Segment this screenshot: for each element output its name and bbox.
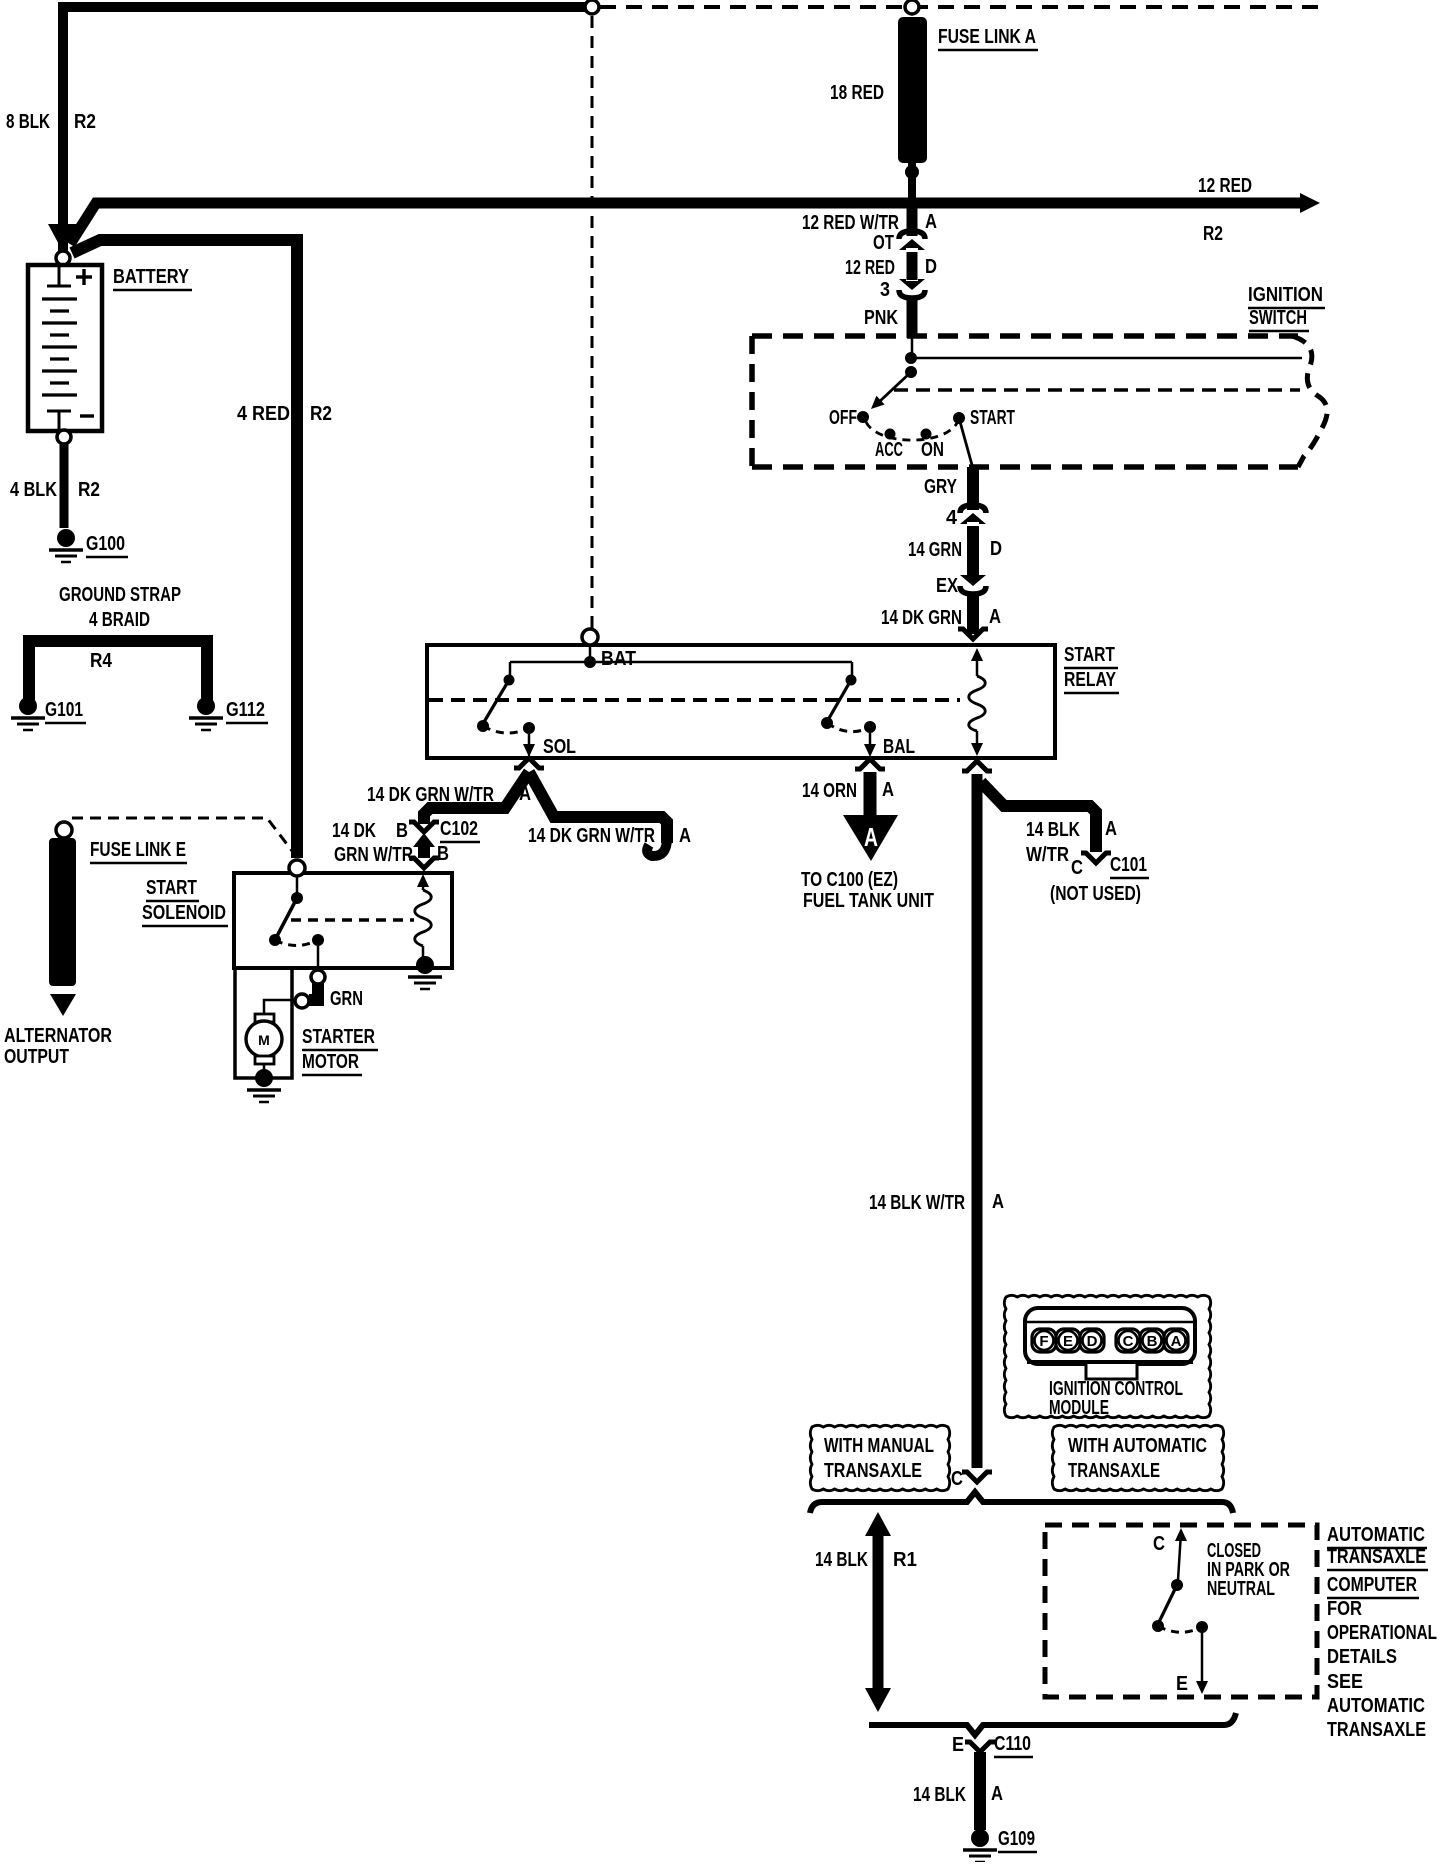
svg-text:R2: R2 [78,479,100,501]
svg-text:START: START [1064,644,1115,666]
svg-text:3: 3 [880,279,890,301]
svg-text:IGNITION: IGNITION [1248,284,1323,306]
svg-text:BAT: BAT [601,648,636,670]
svg-text:SOL: SOL [543,736,576,758]
svg-text:F: F [1039,1333,1048,1350]
svg-text:14 GRN: 14 GRN [908,539,962,561]
svg-text:ON: ON [921,439,944,461]
svg-text:BAL: BAL [883,736,915,758]
svg-text:M: M [258,1032,270,1048]
svg-text:FOR: FOR [1327,1598,1362,1620]
svg-text:12 RED: 12 RED [1198,175,1252,197]
svg-text:R1: R1 [893,1549,917,1571]
svg-text:GRN W/TR: GRN W/TR [334,844,413,866]
svg-text:B: B [396,820,408,842]
svg-text:SWITCH: SWITCH [1249,307,1307,329]
svg-text:TRANSAXLE: TRANSAXLE [824,1460,922,1482]
svg-text:G109: G109 [998,1828,1035,1850]
svg-text:STARTER: STARTER [302,1026,375,1048]
svg-text:A: A [992,1191,1004,1213]
svg-text:TRANSAXLE: TRANSAXLE [1327,1546,1426,1568]
svg-text:A: A [991,1783,1003,1805]
svg-text:SOLENOID: SOLENOID [142,902,226,924]
svg-text:C: C [1071,857,1083,879]
svg-text:R4: R4 [90,650,113,672]
svg-text:C101: C101 [1110,854,1147,876]
svg-text:ACC: ACC [875,439,903,461]
svg-text:A: A [679,825,691,847]
svg-text:G101: G101 [45,699,83,721]
svg-text:ALTERNATOR: ALTERNATOR [4,1025,112,1047]
svg-text:C110: C110 [994,1733,1031,1755]
svg-text:MODULE: MODULE [1049,1397,1109,1419]
svg-text:A: A [989,606,1001,628]
svg-text:WITH AUTOMATIC: WITH AUTOMATIC [1068,1435,1207,1457]
svg-text:14 BLK: 14 BLK [1026,819,1080,841]
svg-text:14 BLK: 14 BLK [913,1784,966,1806]
svg-text:GRY: GRY [924,476,958,498]
svg-text:E: E [1063,1333,1073,1350]
svg-text:R2: R2 [74,111,96,133]
svg-text:W/TR: W/TR [1026,844,1069,866]
svg-text:A: A [864,822,878,852]
svg-text:GROUND STRAP: GROUND STRAP [59,584,181,606]
svg-text:GRN: GRN [330,988,363,1010]
svg-text:G112: G112 [226,699,265,721]
svg-text:A: A [925,211,937,233]
svg-text:EX: EX [936,575,959,597]
svg-text:AUTOMATIC: AUTOMATIC [1327,1695,1425,1717]
svg-text:OUTPUT: OUTPUT [4,1046,69,1068]
svg-text:COMPUTER: COMPUTER [1327,1574,1417,1596]
svg-text:C: C [951,1468,963,1490]
svg-text:SEE: SEE [1327,1671,1363,1693]
svg-text:C: C [1123,1333,1134,1350]
svg-text:14 BLK: 14 BLK [815,1549,868,1571]
svg-text:14 DK: 14 DK [332,820,376,842]
svg-text:18 RED: 18 RED [830,82,884,104]
svg-text:C102: C102 [440,818,478,840]
svg-text:OFF: OFF [829,407,857,429]
svg-text:PNK: PNK [864,307,898,329]
svg-text:12 RED: 12 RED [845,257,895,279]
svg-text:4 BRAID: 4 BRAID [89,609,150,631]
svg-text:14 DK GRN W/TR: 14 DK GRN W/TR [367,784,494,806]
svg-text:D: D [1087,1333,1098,1350]
svg-text:A: A [882,779,894,801]
svg-text:E: E [952,1734,964,1756]
svg-text:4 RED: 4 RED [237,403,290,425]
svg-text:R2: R2 [310,403,332,425]
svg-text:A: A [1105,818,1117,840]
svg-text:D: D [925,256,937,278]
svg-text:FUSE LINK E: FUSE LINK E [90,839,186,861]
svg-text:A: A [519,783,531,805]
svg-text:NEUTRAL: NEUTRAL [1207,1578,1275,1600]
svg-text:TO C100 (EZ): TO C100 (EZ) [801,869,898,891]
svg-text:BATTERY: BATTERY [113,266,190,288]
svg-text:G100: G100 [86,533,125,555]
svg-text:RELAY: RELAY [1064,669,1117,691]
svg-text:START: START [146,877,197,899]
svg-text:B: B [437,843,449,865]
svg-text:12 RED W/TR: 12 RED W/TR [802,212,899,234]
svg-text:MOTOR: MOTOR [302,1051,359,1073]
svg-text:14 DK GRN W/TR: 14 DK GRN W/TR [528,825,655,847]
svg-text:D: D [990,538,1002,560]
svg-text:4: 4 [946,507,958,529]
svg-text:AUTOMATIC: AUTOMATIC [1327,1524,1425,1546]
svg-text:DETAILS: DETAILS [1327,1646,1397,1668]
svg-text:8 BLK: 8 BLK [6,111,50,133]
svg-text:OT: OT [873,232,894,254]
svg-text:C: C [1153,1533,1165,1555]
svg-text:A: A [1171,1333,1182,1350]
svg-text:R2: R2 [1203,223,1223,245]
svg-text:FUSE LINK A: FUSE LINK A [938,26,1036,48]
svg-text:WITH MANUAL: WITH MANUAL [824,1435,934,1457]
svg-text:14 BLK W/TR: 14 BLK W/TR [869,1192,965,1214]
svg-text:E: E [1176,1673,1188,1695]
svg-text:(NOT USED): (NOT USED) [1050,883,1141,905]
svg-text:START: START [970,407,1015,429]
svg-text:B: B [1147,1333,1158,1350]
svg-text:OPERATIONAL: OPERATIONAL [1327,1622,1437,1644]
svg-text:TRANSAXLE: TRANSAXLE [1068,1460,1160,1482]
svg-text:14 DK GRN: 14 DK GRN [881,607,962,629]
svg-text:14 ORN: 14 ORN [802,780,857,802]
svg-text:TRANSAXLE: TRANSAXLE [1327,1719,1426,1741]
svg-text:FUEL TANK UNIT: FUEL TANK UNIT [803,890,934,912]
svg-text:4 BLK: 4 BLK [10,479,57,501]
